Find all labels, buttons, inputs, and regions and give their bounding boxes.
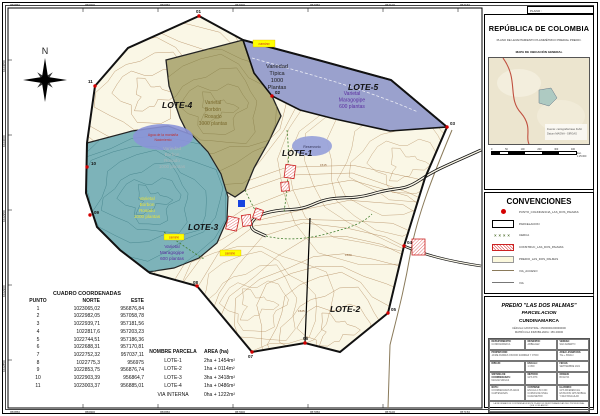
contour-value: 1515 <box>320 163 327 167</box>
cell: 3ha + 3418m² <box>204 374 256 383</box>
field-value: 7ha + 6694m² <box>560 355 587 358</box>
minimap-note-2: Datum MAGNA - SIRGAS <box>547 131 577 135</box>
field-origen: ORIGEN: BOGOTA <box>557 372 589 385</box>
grid-label-top: 956950 <box>160 3 170 7</box>
borbon-gray-line: 1000 plantas <box>159 164 186 169</box>
marago5-line: 600 plantas <box>339 104 365 110</box>
north-label: N <box>42 46 49 56</box>
grid-label-bottom: 956950 <box>160 410 170 414</box>
field-propietario: PROPIETARIO: JAIME ANDRES OSORIO RAMIREZ… <box>489 350 557 361</box>
titleblock-matricula: MATRÍCULA INMOBILIARIA: 156-00000 <box>485 331 593 334</box>
parcel-row: LOTE-12ha + 1454m² <box>142 357 258 366</box>
cell: 956975 <box>100 360 144 368</box>
coord-row: 101022903,39956864,7 <box>28 375 146 383</box>
borbon-yellow-line: Borbon <box>140 202 155 207</box>
col-este: ESTE <box>100 298 144 306</box>
legend-item: PARCELACION <box>485 218 593 230</box>
terrain-patch <box>497 69 541 97</box>
point-label: 10 <box>91 161 97 166</box>
grid-label-bottom: 957150 <box>460 410 470 414</box>
plan-sheet: Agua de la montaña Nacimiento Reservorio… <box>0 0 600 416</box>
field-value: CUNDINAMARCA <box>492 344 523 347</box>
coord-row: 81022775,3956975 <box>28 360 146 368</box>
spring-label-1: Agua de la montaña <box>148 133 178 137</box>
field-departamento: DEPARTAMENTO: CUNDINAMARCA <box>489 339 525 350</box>
road-swatch-icon <box>492 282 514 283</box>
plano-number-box: PLANO : <box>527 6 594 14</box>
coord-row: 41022817,6957203,23 <box>28 329 146 337</box>
marago5-line: Maragogipe <box>339 98 366 104</box>
fence-swatch-icon: ×××× <box>492 232 514 239</box>
coord-row: 31022939,71957181,56 <box>28 321 146 329</box>
lote5-label: LOTE-5 <box>348 82 378 92</box>
cell: 1023003,37 <box>48 383 100 391</box>
panel-header-section: REPÚBLICA DE COLOMBIA PLANO DE LEVANTAMI… <box>484 14 594 190</box>
lote2-label: LOTE-2 <box>330 304 360 314</box>
tipica-line: Variedad <box>266 64 288 70</box>
cell: 6 <box>28 344 48 352</box>
grid-label-bottom: 957000 <box>235 410 245 414</box>
grid-label-left: 1022900 <box>2 285 6 297</box>
country-title: REPÚBLICA DE COLOMBIA <box>485 24 593 33</box>
borbon-gray-line: Variedad <box>163 146 181 151</box>
tick: 400 <box>571 148 575 151</box>
cell: 956885,01 <box>100 383 144 391</box>
col-punto: PUNTO <box>28 298 48 306</box>
point-label: 08 <box>193 280 199 285</box>
point-label: 09 <box>94 210 100 215</box>
cell: 1 <box>28 306 48 314</box>
point-label: 03 <box>450 121 456 126</box>
cell: 956876,84 <box>100 306 144 314</box>
coordinates-table-title: CUADRO COORDENADAS <box>28 291 146 297</box>
field-value: 1:1500 <box>528 366 555 369</box>
cell: 4 <box>28 329 48 337</box>
cell: 1ha + 0114m² <box>204 365 256 374</box>
field-sistema: SISTEMA DE COORDENADAS: MAGNA SIRGAS <box>489 372 525 385</box>
legend-label: CERCA <box>519 233 529 237</box>
legend-label: PREDIO_LAS_DOS_PALMAS <box>519 257 558 261</box>
cell: 0ha + 1222m² <box>204 391 256 400</box>
field-dibujo: DIBUJO: <box>489 361 525 372</box>
field-elaboro: ELABORO: GPS DIFERENCIAL ESTACION GPS MO… <box>557 385 589 401</box>
field-value: GPS RTK <box>528 377 555 380</box>
location-minimap: Fuente: cartografia base IGAC Datum MAGN… <box>488 57 590 145</box>
tipica-line: Típica <box>269 71 285 77</box>
legend-section: CONVENCIONES PUNTO_COLINDANCIA_LAS_DOS_P… <box>484 192 594 294</box>
cell: 2 <box>28 313 48 321</box>
point-label: 11 <box>88 79 93 84</box>
point-swatch-icon <box>492 208 514 215</box>
cell: 1023065,02 <box>48 306 100 314</box>
legend-item: VIA <box>485 277 593 289</box>
field-value: SEPTIEMBRE 2021 <box>560 366 587 369</box>
scalebar-bar <box>491 151 577 156</box>
cell: 957170,81 <box>100 344 144 352</box>
titleblock-grid: DEPARTAMENTO: CUNDINAMARCA MUNICIPIO: AR… <box>488 338 590 413</box>
field-fecha: FECHA: SEPTIEMBRE 2021 <box>557 361 589 372</box>
cell: 9 <box>28 367 48 375</box>
titleblock-footnote: LA INFORMACION CONTENIDA EN ESTE PLANO E… <box>489 401 589 412</box>
tipica-line: 1000 <box>271 78 283 84</box>
field-value: GPS DIFERENCIAL ESTACION GPS MOBILE Y RE… <box>560 390 587 399</box>
lote3-label: LOTE-3 <box>188 222 218 232</box>
grid-label-top: 957150 <box>460 3 470 7</box>
parcel-area-table: NOMBRE PARCELA AREA (ha) LOTE-12ha + 145… <box>142 348 258 400</box>
cell: 1022853,75 <box>48 367 100 375</box>
coord-row: 11023065,02956876,84 <box>28 306 146 314</box>
marago-teal-line: Varietal <box>164 244 179 249</box>
lote4-label: LOTE-4 <box>162 100 192 110</box>
parcel-table-header: NOMBRE PARCELA AREA (ha) <box>142 348 258 357</box>
minimap-scalebar: 0 50 100 200 300 400 Esc. 1:25.000 <box>491 148 589 159</box>
parcel-row: LOTE-33ha + 3418m² <box>142 374 258 383</box>
point-label: 02 <box>275 90 281 95</box>
grid-label-bottom: 957100 <box>385 410 395 414</box>
coordinates-table: CUADRO COORDENADAS PUNTO NORTE ESTE 1102… <box>28 291 146 390</box>
coord-row: 51022744,51957186,36 <box>28 337 146 345</box>
legend-item: CONSTRUC_LAS_DOS_PALMAS <box>485 241 593 253</box>
cell: 1ha + 0486m² <box>204 382 256 391</box>
cell: LOTE-3 <box>142 374 204 383</box>
field-metodo: METODO: GPS RTK <box>525 372 557 385</box>
parcel-row: LOTE-41ha + 0486m² <box>142 382 258 391</box>
path-label-3: camino <box>225 252 236 256</box>
field-value: SAN ALBERTO <box>560 344 587 347</box>
coord-row: 91022853,75956876,74 <box>28 367 146 375</box>
borbon-yellow-line: Rosado <box>139 208 155 213</box>
cell: 5 <box>28 337 48 345</box>
field-vereda: VEREDA: SAN ALBERTO <box>557 339 589 350</box>
predio-swatch-icon <box>492 256 514 263</box>
cell: 957203,23 <box>100 329 144 337</box>
cell: 957181,56 <box>100 321 144 329</box>
tick: 200 <box>537 148 541 151</box>
parcel-swatch-icon <box>492 220 514 228</box>
cell: 11 <box>28 383 48 391</box>
grid-label-top: 956850 <box>10 3 20 7</box>
lote1-label: LOTE-1 <box>282 148 312 158</box>
cell: 1022982,05 <box>48 313 100 321</box>
coord-row: 61022688,31957170,81 <box>28 344 146 352</box>
cell: LOTE-1 <box>142 357 204 366</box>
cell: LOTE-2 <box>142 365 204 374</box>
legend-item: PREDIO_LAS_DOS_PALMAS <box>485 253 593 265</box>
field-value: ESCALA 1:50 CON CURVAS DE NIVEL CADA MET… <box>528 390 555 399</box>
field-value: MAGNA SIRGAS <box>492 380 523 383</box>
marago-teal-line: Maragogipe <box>160 250 185 255</box>
cell: 1022752,32 <box>48 352 100 360</box>
path-label-2: camino <box>169 236 180 240</box>
borbon-yellow-line: 1000 plantas <box>134 214 161 219</box>
borbon-olive-line: 1000 plantas <box>199 121 228 127</box>
field-municipio: MUNICIPIO: ARBELAEZ <box>525 339 557 350</box>
titleblock-section: PREDIO "LAS DOS PALMAS" PARCELACION CUND… <box>484 296 594 408</box>
coordinates-table-header: PUNTO NORTE ESTE <box>28 298 146 306</box>
cell: 7 <box>28 352 48 360</box>
field-label: DIBUJO: <box>492 363 523 366</box>
borbon-olive-line: Borbón <box>205 107 221 113</box>
scale-label: Esc. 1:25.000 <box>577 152 589 158</box>
titleblock-tipo: PARCELACION <box>485 311 593 316</box>
legend-item: PUNTO_COLINDANCIA_LAS_DOS_PALMAS <box>485 206 593 218</box>
location-map-caption: MAPA DE UBICACIÓN GENERAL <box>485 50 593 54</box>
tick: 0 <box>491 148 492 151</box>
cell: 1022688,31 <box>48 344 100 352</box>
cell: 10 <box>28 375 48 383</box>
legend-label: VIA_ACCESO <box>519 269 537 273</box>
point-label: 01 <box>196 9 202 14</box>
field-value: BOGOTA <box>560 377 587 380</box>
point-label: 05 <box>391 307 397 312</box>
contour-value: 1520 <box>345 253 352 257</box>
minimap-note-1: Fuente: cartografia base IGAC <box>547 127 582 131</box>
legend-item: VIA_ACCESO <box>485 265 593 277</box>
field-value: ARBELAEZ <box>528 344 555 347</box>
col-area: AREA (ha) <box>204 348 256 357</box>
grid-label-top: 957050 <box>310 3 320 7</box>
grid-label-left: 1022850 <box>2 360 6 372</box>
access-road-swatch-icon <box>492 270 514 271</box>
tank-square <box>238 200 245 207</box>
field-nota: NOTA: COORDENADAS PLANAS CARTESIANAS <box>489 385 525 401</box>
cell: 1022939,71 <box>48 321 100 329</box>
coord-row: 21022982,05957058,78 <box>28 313 146 321</box>
borbon-yellow-line: Varietal <box>139 196 154 201</box>
legend-label: VIA <box>519 281 524 285</box>
contour-value: 1525 <box>298 309 305 313</box>
tick: 100 <box>521 148 525 151</box>
titleblock-depto: CUNDINAMARCA <box>485 319 593 324</box>
cell: 956876,74 <box>100 367 144 375</box>
cell: 1022903,39 <box>48 375 100 383</box>
marago-teal-line: 600 plantas <box>160 256 184 261</box>
borbon-gray-line: Rosado <box>164 158 180 163</box>
borbon-gray-line: Borbon <box>165 152 180 157</box>
grid-label-left: 1023000 <box>2 135 6 147</box>
grid-label-bottom: 956850 <box>10 410 20 414</box>
field-escala: ESCALA: 1:1500 <box>525 361 557 372</box>
construction-swatch-icon <box>492 244 514 251</box>
cell: 8 <box>28 360 48 368</box>
cell: 1022744,51 <box>48 337 100 345</box>
cell: 2ha + 1454m² <box>204 357 256 366</box>
grid-label-top: 956900 <box>85 3 95 7</box>
parcel-row: LOTE-21ha + 0114m² <box>142 365 258 374</box>
grid-label-top: 957000 <box>235 3 245 7</box>
cell: 1022775,3 <box>48 360 100 368</box>
grid-label-left: 1022950 <box>2 210 6 222</box>
col-nombre: NOMBRE PARCELA <box>142 348 204 357</box>
cell: 1022817,6 <box>48 329 100 337</box>
titleblock-cedula: CÉDULA CATASTRAL: 25000001000000000 <box>485 327 593 330</box>
cell: 957186,36 <box>100 337 144 345</box>
grid-label-top: 957100 <box>385 3 395 7</box>
field-area: AREA LEVANTADA: 7ha + 6694m² <box>557 350 589 361</box>
legend-label: PUNTO_COLINDANCIA_LAS_DOS_PALMAS <box>519 210 579 214</box>
legend-title: CONVENCIONES <box>485 197 593 206</box>
titleblock-predio: PREDIO "LAS DOS PALMAS" <box>485 303 593 309</box>
field-value: JAIME ANDRES OSORIO RAMIREZ Y OTRO <box>492 355 555 358</box>
point-label: 04 <box>407 240 413 245</box>
minimap-canvas: Fuente: cartografia base IGAC Datum MAGN… <box>489 58 589 144</box>
grid-label-bottom: 956900 <box>85 410 95 414</box>
borbon-olive-line: Rosado <box>204 114 221 120</box>
tick: 300 <box>554 148 558 151</box>
field-contiene: CONTIENE: ESCALA 1:50 CON CURVAS DE NIVE… <box>525 385 557 401</box>
cell: VIA INTERNA <box>142 391 204 400</box>
legend-label: PARCELACION <box>519 222 540 226</box>
cell: LOTE-4 <box>142 382 204 391</box>
cell: 957037,11 <box>100 352 144 360</box>
path-label-1: camino <box>259 42 270 46</box>
cell: 3 <box>28 321 48 329</box>
point-label: 06 <box>303 336 309 341</box>
coord-row: 111023003,37956885,01 <box>28 383 146 391</box>
spring-label-2: Nacimiento <box>155 138 172 142</box>
cell: 957058,78 <box>100 313 144 321</box>
plan-subtitle: PLANO DE LEVANTAMIENTO PLANIMÉTRICO PRED… <box>493 39 585 43</box>
borbon-olive-line: Varietal <box>205 100 222 106</box>
coord-row: 71022752,32957037,11 <box>28 352 146 360</box>
parcel-row: VIA INTERNA0ha + 1222m² <box>142 391 258 400</box>
field-value: COORDENADAS PLANAS CARTESIANAS <box>492 390 523 396</box>
grid-label-left: 1023050 <box>2 60 6 72</box>
cell: 956864,7 <box>100 375 144 383</box>
legend-label: CONSTRUC_LAS_DOS_PALMAS <box>519 245 563 249</box>
tick: 50 <box>505 148 508 151</box>
grid-label-bottom: 957050 <box>310 410 320 414</box>
legend-item: ×××× CERCA <box>485 230 593 242</box>
col-norte: NORTE <box>48 298 100 306</box>
